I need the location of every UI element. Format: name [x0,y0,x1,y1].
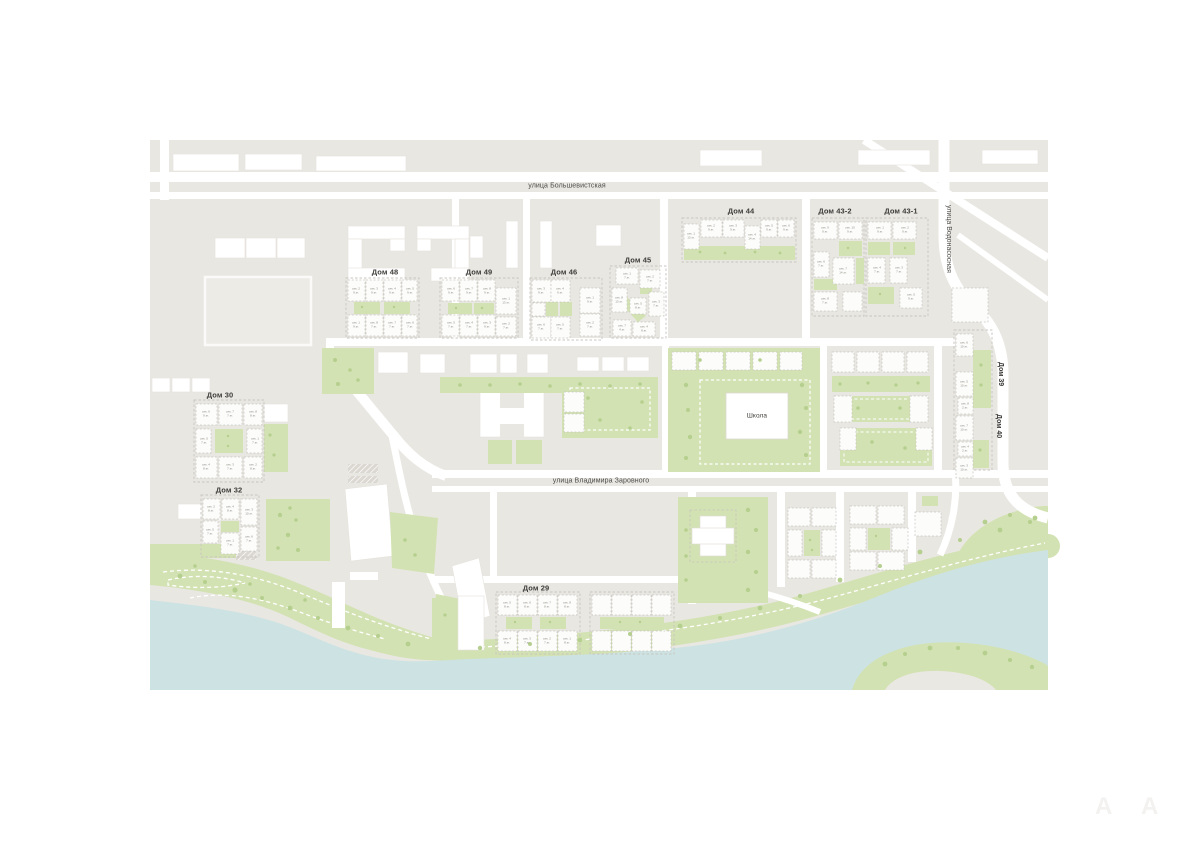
section-label: сек. 89 эт. [483,287,491,294]
section-label: сек. 77 эт. [226,410,234,417]
street-label-zarovnogo: улица Владимира Заровного [553,478,649,485]
section-label: сек. 69 эт. [202,410,210,417]
section-label: сек. 79 эт. [465,287,473,294]
section-label: сек. 29 эт. [352,287,360,294]
house-label-dom-46[interactable]: Дом 46 [551,268,578,277]
house-label-dom-45[interactable]: Дом 45 [625,256,652,265]
house-label-dom-43-1[interactable]: Дом 43-1 [884,207,917,216]
house-label-dom-49[interactable]: Дом 49 [466,268,493,277]
section-label: сек. 29 эт. [901,226,909,233]
section-label: сек. 48 эт. [226,505,234,512]
section-label: сек. 67 эт. [537,323,545,330]
section-label: сек. 37 эт. [895,266,903,273]
section-label: сек. 68 эт. [523,601,531,608]
section-label: сек. 57 эт. [556,323,564,330]
section-label: сек. 710 эт. [960,424,968,431]
section-label: сек. 49 эт. [388,287,396,294]
section-label: сек. 99 эт. [821,226,829,233]
section-label: сек. 82 эт. [961,402,969,409]
watermark-logo-icon: A [1141,793,1158,821]
section-label: сек. 113 эт. [502,297,510,304]
section-label: сек. 87 эт. [821,297,829,304]
section-label: сек. 39 эт. [537,287,545,294]
section-label: сек. 27 эт. [646,275,654,282]
section-label: сек. 59 эт. [907,293,915,300]
section-label: сек. 28 эт. [249,463,257,470]
section-label: сек. 113 эт. [687,232,695,239]
section-label: сек. 414 эт. [748,233,756,240]
section-label: сек. 88 эт. [563,601,571,608]
section-label: сек. 109 эт. [845,226,855,233]
street-label-bolshevistskaya: улица Большевистская [528,183,605,190]
section-label: сек. 37 эт. [523,637,531,644]
watermark-logo-icon: A [1095,793,1112,821]
section-label: сек. 37 эт. [226,463,234,470]
section-label: сек. 67 эт. [817,260,825,267]
section-label: сек. 29 эт. [707,224,715,231]
house-label-dom-32[interactable]: Дом 32 [216,486,243,495]
section-label: сек. 59 эт. [406,287,414,294]
section-label: сек. 42 эт. [961,445,969,452]
section-label: сек. 49 эт. [556,287,564,294]
street-label-vodonasosnaya: улица Водонасосная [945,205,952,273]
masterplan-page: улица Большевистская улица Владимира Зар… [0,0,1200,843]
section-label: сек. 78 эт. [543,601,551,608]
section-label: сек. 67 эт. [406,321,414,328]
masterplan-map[interactable]: улица Большевистская улица Владимира Зар… [0,0,1200,843]
house-label-dom-48[interactable]: Дом 48 [372,268,399,277]
house-label-dom-43-2[interactable]: Дом 43-2 [818,207,851,216]
section-label: сек. 27 эт. [586,321,594,328]
house-label-dom-40[interactable]: Дом 40 [995,414,1002,438]
section-label: сек. 17 эт. [226,539,234,546]
map-canvas [0,0,1200,843]
section-label: сек. 610 эт. [960,341,968,348]
section-label: сек. 87 эт. [370,321,378,328]
section-label: сек. 37 эт. [652,300,660,307]
section-label: сек. 59 эт. [765,224,773,231]
section-label: сек. 69 эт. [447,287,455,294]
house-label-dom-29[interactable]: Дом 29 [523,584,550,593]
school-label: Школа [747,413,767,420]
section-label: сек. 27 эт. [543,637,551,644]
section-label: сек. 813 эт. [615,296,623,303]
section-label: сек. 57 эт. [206,528,214,535]
section-label: сек. 57 эт. [447,321,455,328]
section-label: сек. 510 эт. [960,380,968,387]
section-label: сек. 19 эт. [876,226,884,233]
section-label: сек. 47 эт. [873,266,881,273]
section-label: сек. 57 эт. [200,437,208,444]
section-label: сек. 47 эт. [465,321,473,328]
section-label: сек. 17 эт. [623,272,631,279]
section-label: сек. 48 эт. [640,325,648,332]
section-label: сек. 18 эт. [563,637,571,644]
section-label: сек. 39 эт. [729,224,737,231]
section-label: сек. 19 эт. [586,296,594,303]
section-label: сек. 69 эт. [782,224,790,231]
section-label: сек. 17 эт. [251,437,259,444]
section-label: сек. 67 эт. [245,535,253,542]
section-label: сек. 714 эт. [839,267,847,274]
section-label: сек. 19 эт. [352,321,360,328]
section-label: сек. 310 эт. [960,464,968,471]
section-label: сек. 58 эт. [634,302,642,309]
house-label-dom-39[interactable]: Дом 39 [997,362,1004,386]
section-label: сек. 48 эт. [202,463,210,470]
section-label: сек. 310 эт. [245,508,253,515]
section-label: сек. 28 эт. [207,505,215,512]
section-label: сек. 58 эт. [503,601,511,608]
section-label: сек. 74 эт. [618,324,626,331]
section-label: сек. 39 эт. [370,287,378,294]
section-label: сек. 39 эт. [483,321,491,328]
section-label: сек. 88 эт. [249,410,257,417]
section-label: сек. 77 эт. [388,321,396,328]
house-label-dom-30[interactable]: Дом 30 [207,391,234,400]
section-label: сек. 27 эт. [502,322,510,329]
section-label: сек. 48 эт. [503,637,511,644]
house-label-dom-44[interactable]: Дом 44 [728,207,755,216]
